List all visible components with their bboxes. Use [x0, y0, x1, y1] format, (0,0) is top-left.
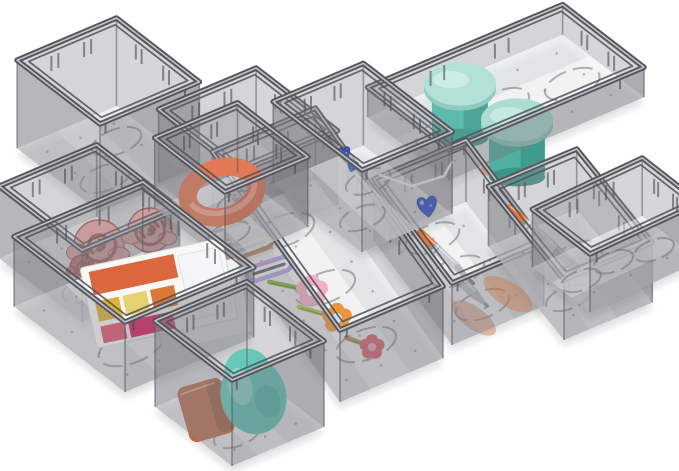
product-photo-drawer-organizers	[0, 0, 679, 471]
scene-svg	[0, 0, 679, 471]
